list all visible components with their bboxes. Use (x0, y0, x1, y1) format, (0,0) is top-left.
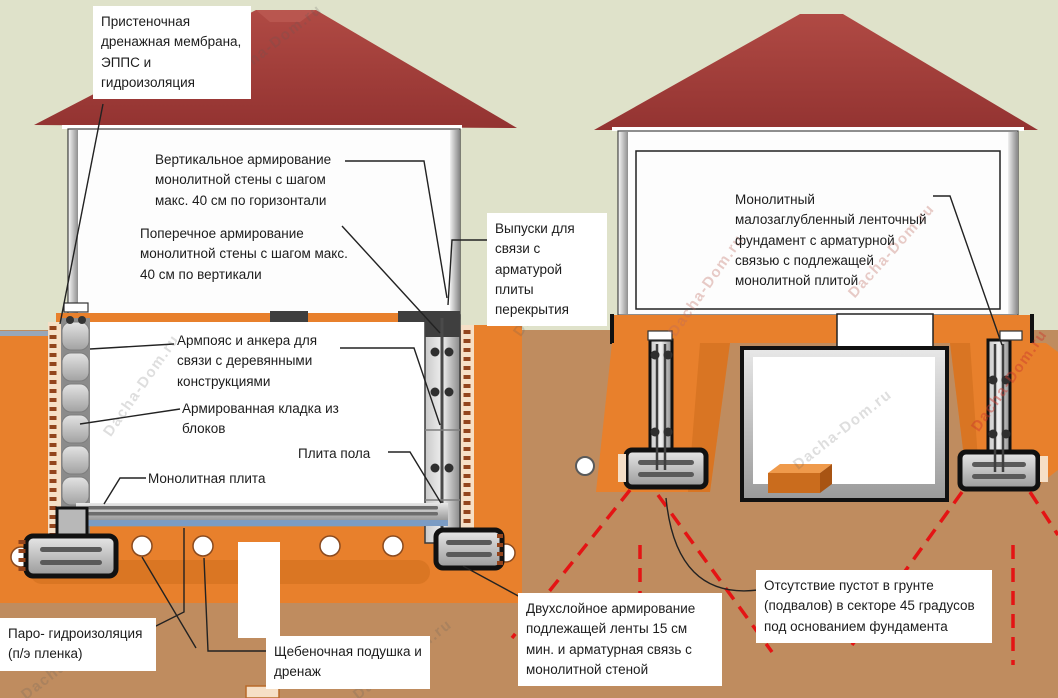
footing-rebar (446, 552, 492, 557)
label-floor-slab: Плита пола (298, 444, 388, 464)
right-roof-eaves-line (612, 127, 1024, 131)
block (62, 384, 89, 412)
monolithic-floor-slab (76, 503, 448, 526)
label-vapor-waterproofing: Паро- гидроизоляция (п/э пленка) (0, 618, 156, 671)
label-gravel-cushion: Щебеночная подушка и дренаж (266, 636, 430, 689)
rebar-dot (1002, 376, 1011, 385)
anchor-plate (64, 303, 88, 312)
rebar-dot (431, 388, 440, 397)
label-wall-membrane: Пристеночная дренажная мембрана, ЭППС и … (93, 6, 251, 99)
rebar-dot (1002, 430, 1011, 439)
block (62, 415, 89, 443)
rebar-dot (664, 428, 673, 437)
pad-membrane (618, 454, 626, 482)
label-no-voids-sector: Отсутствие пустот в грунте (подвалов) в … (756, 570, 992, 643)
drain-pipe (320, 536, 340, 556)
label-slab-rebar-outlets: Выпуски для связи с арматурой плиты пере… (487, 213, 607, 326)
right-wall-corner-right (1008, 132, 1017, 314)
rebar-dot (651, 428, 660, 437)
label-armo-belt: Армпояс и анкера для связи с деревянными… (177, 331, 339, 392)
rebar-dot (989, 430, 998, 439)
label-strip-foundation: Монолитный малозаглубленный ленточный фу… (735, 190, 935, 291)
diagram-canvas: Dacha-Dom.ru Dacha-Dom.ru Dacha-Dom.ru D… (0, 0, 1058, 698)
right-footing (436, 530, 502, 568)
brick-front (768, 473, 820, 493)
anchor-dot (66, 316, 74, 324)
label-reinforced-masonry: Армированная кладка из блоков (182, 399, 350, 440)
block (62, 322, 89, 350)
rebar-dot (445, 348, 454, 357)
footing-rebar (40, 547, 102, 552)
rebar-dot (651, 351, 660, 360)
anchor-plate (1000, 331, 1022, 340)
right-slab-band (610, 315, 1034, 343)
block (62, 353, 89, 381)
block (62, 446, 89, 474)
rebar-dot (431, 348, 440, 357)
left-roof-eaves-line (62, 125, 462, 129)
slab-waterproofing-blue (76, 520, 448, 526)
left-wall-corner-left (69, 130, 78, 318)
center-basement-room (742, 348, 947, 500)
pier-pad (960, 452, 1038, 489)
brick (768, 464, 832, 493)
rebar-dot (431, 464, 440, 473)
slab-rebar-line (88, 506, 438, 510)
drain-pipe (576, 457, 594, 475)
slab-body (76, 503, 448, 520)
footing-rebar (446, 540, 492, 545)
left-wall-corner-right (450, 130, 459, 318)
right-wall-corner-left (619, 132, 628, 314)
drain-pipe (383, 536, 403, 556)
pad-membrane (1040, 456, 1048, 482)
slab-rebar-line (88, 512, 438, 516)
anchor-plate (648, 331, 672, 340)
label-vertical-reinforcement: Вертикальное армирование монолитной стен… (155, 150, 353, 211)
label-two-layer-reinforcement: Двухслойное армирование подлежащей ленты… (518, 593, 722, 686)
label-monolithic-slab: Монолитная плита (148, 469, 288, 489)
rebar-dot (445, 388, 454, 397)
block (62, 477, 89, 505)
pier-rebar (972, 474, 1026, 479)
footing-rebar (40, 560, 102, 565)
footing-pad (26, 536, 116, 576)
drain-pipe (132, 536, 152, 556)
drain-pipe (193, 536, 213, 556)
label-transverse-reinforcement: Поперечное армирование монолитной стены … (140, 224, 352, 285)
pier-rebar (638, 472, 694, 477)
anchor-dot (78, 316, 86, 324)
rebar-dot (989, 376, 998, 385)
footing-pad (436, 530, 502, 568)
pier-stem (988, 340, 1010, 457)
rebar-dot (664, 351, 673, 360)
pier-rebar (972, 462, 1026, 467)
callout-strip (238, 542, 280, 638)
rebar-dot (445, 464, 454, 473)
